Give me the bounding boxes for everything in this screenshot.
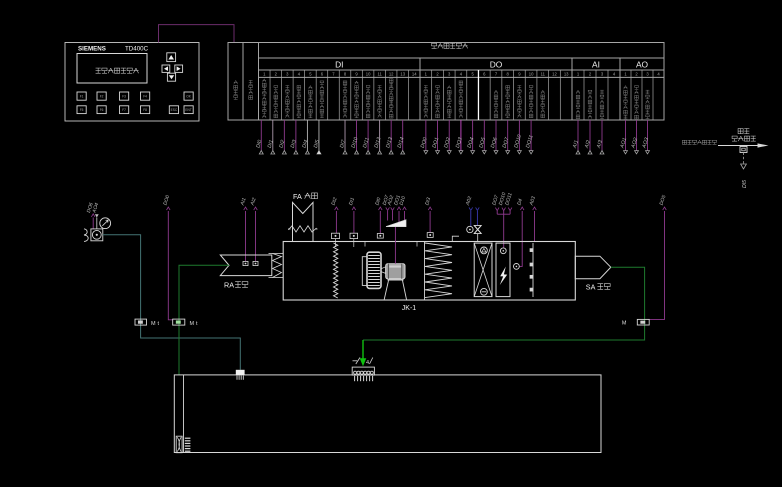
svg-text:3: 3 xyxy=(448,72,451,77)
svg-text:TD400C: TD400C xyxy=(125,46,149,53)
svg-text:1: 1 xyxy=(425,72,428,77)
svg-text:9: 9 xyxy=(518,72,521,77)
svg-text:DI12: DI12 xyxy=(374,136,383,148)
svg-text:DO0: DO0 xyxy=(162,194,171,206)
svg-text:DO5: DO5 xyxy=(659,194,668,206)
svg-text:13: 13 xyxy=(400,72,405,77)
svg-text:11: 11 xyxy=(541,72,546,77)
svg-text:SA: SA xyxy=(586,283,596,292)
svg-text:DO: DO xyxy=(490,59,503,69)
svg-text:3: 3 xyxy=(601,72,604,77)
svg-text:F7: F7 xyxy=(122,108,126,112)
svg-text:AO: AO xyxy=(636,59,649,69)
svg-text:JK-1: JK-1 xyxy=(402,305,417,312)
svg-text:7: 7 xyxy=(495,72,498,77)
svg-text:OK: OK xyxy=(186,95,191,99)
svg-text:8: 8 xyxy=(344,72,347,77)
svg-text:6: 6 xyxy=(321,72,324,77)
svg-text:AI3: AI3 xyxy=(596,139,604,149)
svg-text:12: 12 xyxy=(389,72,394,77)
svg-text:FA: FA xyxy=(293,192,302,201)
svg-text:DI13: DI13 xyxy=(385,136,394,148)
svg-text:9: 9 xyxy=(355,72,358,77)
svg-text:AO2: AO2 xyxy=(630,137,639,150)
svg-text:6: 6 xyxy=(483,72,486,77)
svg-text:DI1: DI1 xyxy=(267,139,275,149)
svg-text:DI1: DI1 xyxy=(348,197,356,206)
svg-text:DO11: DO11 xyxy=(525,134,535,148)
svg-text:DO5: DO5 xyxy=(478,137,487,149)
svg-text:DI10: DI10 xyxy=(351,136,360,148)
svg-text:14: 14 xyxy=(412,72,417,77)
svg-text:DO6: DO6 xyxy=(490,137,499,149)
svg-text:F8: F8 xyxy=(143,108,147,112)
svg-text:D10: D10 xyxy=(399,195,407,206)
svg-text:10: 10 xyxy=(366,72,371,77)
svg-text:DO7: DO7 xyxy=(502,136,511,149)
svg-text:DO3: DO3 xyxy=(455,137,464,149)
svg-text:ESC: ESC xyxy=(171,108,178,112)
svg-text:F1: F1 xyxy=(80,95,84,99)
svg-text:DI5: DI5 xyxy=(742,180,748,188)
svg-text:M: M xyxy=(622,321,627,327)
svg-text:F5: F5 xyxy=(80,108,84,112)
svg-text:12: 12 xyxy=(552,72,557,77)
svg-text:F2: F2 xyxy=(100,95,104,99)
svg-text:1: 1 xyxy=(263,72,266,77)
svg-text:4: 4 xyxy=(366,360,369,366)
svg-text:1: 1 xyxy=(624,72,627,77)
svg-text:3: 3 xyxy=(646,72,649,77)
svg-text:13: 13 xyxy=(564,72,569,77)
svg-text:F3: F3 xyxy=(122,95,126,99)
svg-text:DO10: DO10 xyxy=(513,134,523,149)
svg-text:F6: F6 xyxy=(100,108,104,112)
svg-text:5: 5 xyxy=(471,72,474,77)
svg-text:7: 7 xyxy=(332,72,335,77)
svg-text:SIEMENS: SIEMENS xyxy=(78,46,106,53)
svg-text:4: 4 xyxy=(460,72,463,77)
svg-text:F4: F4 xyxy=(143,95,147,99)
svg-text:AO1: AO1 xyxy=(619,137,628,150)
svg-text:10: 10 xyxy=(529,72,534,77)
svg-text:DI7: DI7 xyxy=(339,138,347,149)
svg-text:8: 8 xyxy=(507,72,510,77)
svg-text:A03: A03 xyxy=(528,196,537,207)
svg-text:DI0: DI0 xyxy=(255,139,263,149)
svg-text:DI4: DI4 xyxy=(301,139,309,149)
svg-text:ENT: ENT xyxy=(185,108,191,112)
svg-text:2: 2 xyxy=(275,72,278,77)
svg-text:3: 3 xyxy=(286,72,289,77)
svg-text:AI: AI xyxy=(592,59,600,69)
svg-text:DI3: DI3 xyxy=(290,139,298,149)
svg-text:DI2: DI2 xyxy=(278,139,286,149)
svg-text:A02: A02 xyxy=(465,196,474,207)
svg-text:DI14: DI14 xyxy=(397,136,406,148)
svg-text:5: 5 xyxy=(309,72,312,77)
svg-text:D4: D4 xyxy=(516,198,524,206)
svg-text:t: t xyxy=(196,321,198,327)
svg-text:DO4: DO4 xyxy=(467,137,476,149)
svg-text:AI2: AI2 xyxy=(584,139,592,149)
svg-text:DO0: DO0 xyxy=(420,137,429,149)
svg-text:2: 2 xyxy=(635,72,638,77)
svg-text:DI11: DI11 xyxy=(362,137,371,149)
svg-text:AI1: AI1 xyxy=(572,139,580,149)
svg-text:M: M xyxy=(190,321,195,327)
svg-text:2: 2 xyxy=(589,72,592,77)
svg-text:M: M xyxy=(151,321,156,327)
svg-text:2: 2 xyxy=(436,72,439,77)
svg-text:DI2: DI2 xyxy=(331,197,339,206)
svg-text:AO3: AO3 xyxy=(641,137,650,150)
svg-text:DI3: DI3 xyxy=(424,197,432,206)
svg-text:DO1: DO1 xyxy=(432,137,441,149)
svg-text:4: 4 xyxy=(657,72,660,77)
svg-text:11: 11 xyxy=(377,72,382,77)
svg-text:DO2: DO2 xyxy=(443,137,452,149)
svg-text:t: t xyxy=(158,321,160,327)
svg-text:DI: DI xyxy=(335,59,343,69)
svg-text:AI1: AI1 xyxy=(239,197,247,207)
svg-text:4: 4 xyxy=(613,72,616,77)
svg-text:1: 1 xyxy=(577,72,580,77)
svg-text:4: 4 xyxy=(298,72,301,77)
svg-text:AI2: AI2 xyxy=(249,197,257,207)
svg-text:RA: RA xyxy=(224,281,234,290)
svg-text:DI5: DI5 xyxy=(313,139,321,149)
